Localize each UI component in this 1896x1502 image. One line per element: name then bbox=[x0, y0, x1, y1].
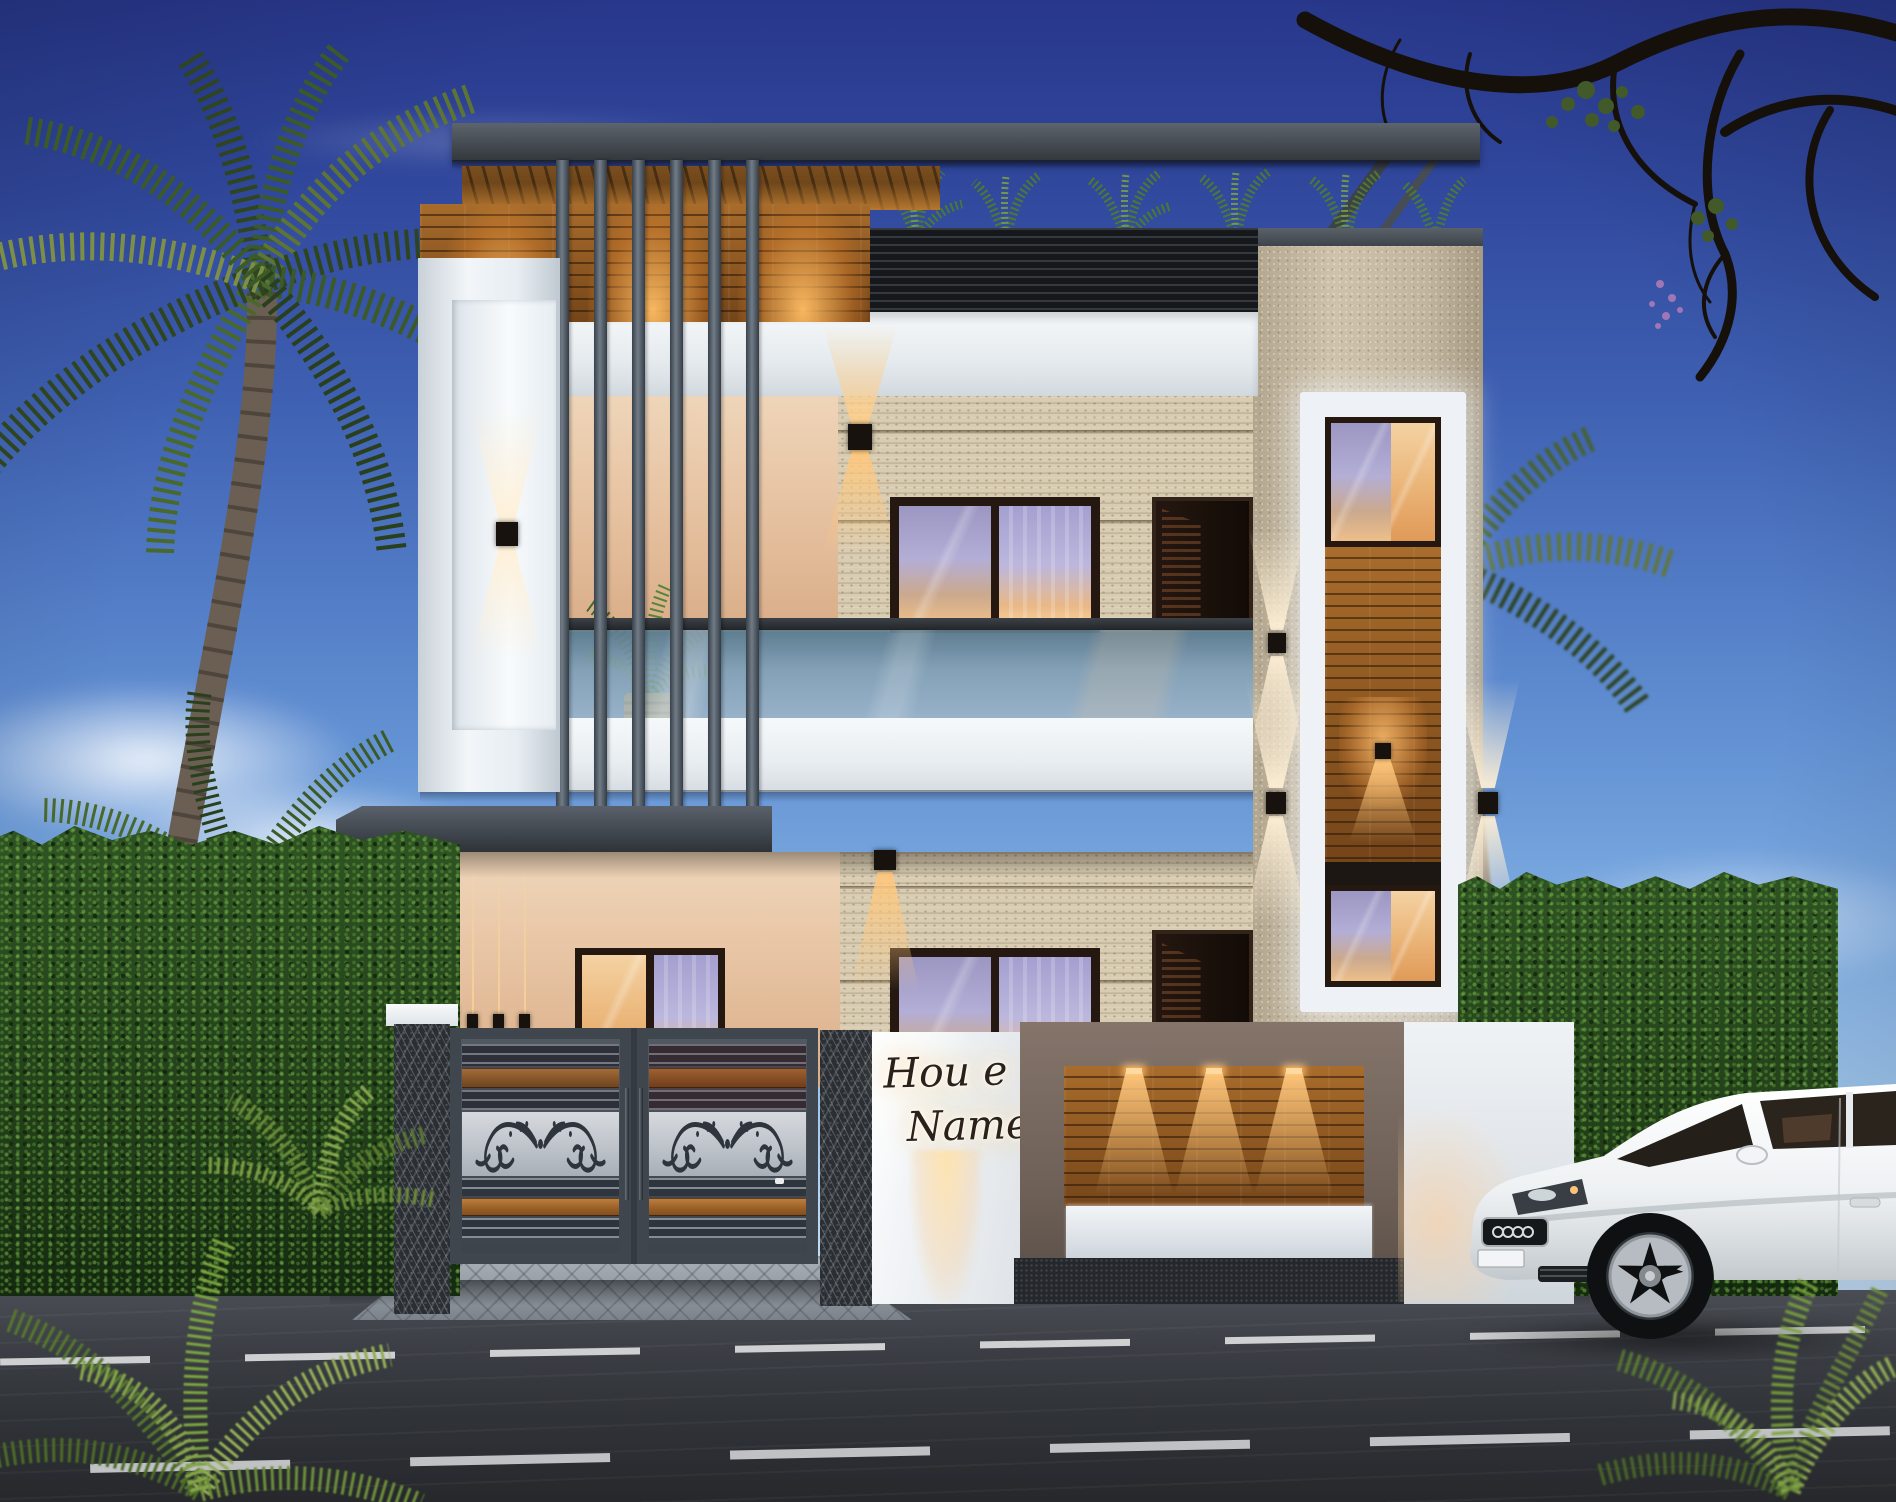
louver-band bbox=[868, 228, 1258, 312]
white-pillar bbox=[418, 258, 560, 792]
wall-sconce-icon bbox=[1266, 792, 1286, 814]
upper-window bbox=[890, 497, 1100, 633]
facade-slat bbox=[632, 160, 645, 850]
scrollwork-ornament bbox=[649, 1112, 806, 1176]
wall-sconce-icon bbox=[874, 850, 896, 870]
facade-slat bbox=[670, 160, 683, 850]
stone-groove bbox=[840, 886, 1253, 889]
uplight-glow bbox=[588, 204, 718, 322]
window-curtain bbox=[995, 506, 1091, 624]
roof-slab bbox=[452, 123, 1480, 161]
wall-sconce-icon bbox=[496, 522, 518, 546]
branch-blossoms bbox=[1649, 280, 1683, 329]
car-b-pillar bbox=[1846, 1092, 1853, 1148]
marble-base bbox=[1014, 1258, 1416, 1304]
house-name-line1: Hou e bbox=[871, 1046, 1020, 1098]
window-curtain bbox=[1331, 891, 1391, 981]
uplight-fixture-icon bbox=[467, 1014, 478, 1029]
uplight-fixture-icon bbox=[493, 1014, 504, 1029]
car-mirror bbox=[1737, 1146, 1767, 1164]
compound-wood-panel bbox=[1064, 1066, 1364, 1208]
tower-feature-inner bbox=[1325, 417, 1441, 987]
window-pane bbox=[1391, 891, 1435, 981]
downlight-icon bbox=[1286, 1068, 1302, 1074]
architectural-render-scene: Hou e Name bbox=[0, 0, 1896, 1502]
window-pane bbox=[899, 506, 995, 624]
feature-window-bottom bbox=[1325, 885, 1441, 987]
upper-balcony-door bbox=[1152, 497, 1253, 631]
door-louver bbox=[1162, 509, 1201, 620]
gate-handle bbox=[639, 1088, 643, 1200]
facade-slat bbox=[708, 160, 721, 850]
downlight-icon bbox=[1126, 1068, 1142, 1074]
wall-sconce-icon bbox=[1478, 792, 1498, 814]
wall-sconce-icon bbox=[1268, 633, 1286, 653]
car-interior bbox=[1782, 1114, 1832, 1143]
marble-pillar-right bbox=[820, 1030, 872, 1306]
car-license-plate bbox=[1478, 1250, 1524, 1267]
downlight-cone bbox=[1092, 1072, 1176, 1206]
foreground-plant-left bbox=[0, 1060, 620, 1502]
downlight-cone bbox=[1252, 1072, 1336, 1206]
taupe-compound-wall bbox=[1020, 1022, 1408, 1265]
feature-wood-panel bbox=[1325, 547, 1441, 862]
name-wall: Hou e Name bbox=[872, 1032, 1020, 1304]
stone-groove bbox=[838, 430, 1253, 433]
foreground-plant-right bbox=[1560, 1190, 1896, 1502]
wall-sconce-icon bbox=[848, 424, 872, 450]
pillar-cap bbox=[386, 1004, 458, 1026]
under-balcony-shadow bbox=[425, 852, 1253, 878]
facade-slat bbox=[746, 160, 759, 850]
tower-feature-frame bbox=[1300, 392, 1466, 1012]
gate-leaf-right bbox=[637, 1028, 818, 1264]
feature-light-icon bbox=[1375, 743, 1391, 759]
gate-ornament-band bbox=[649, 1112, 806, 1176]
white-planter bbox=[1066, 1206, 1372, 1260]
downlight-icon bbox=[1206, 1068, 1222, 1074]
gate-tint bbox=[649, 1044, 806, 1110]
gate-handle bbox=[625, 1088, 629, 1200]
gate-slats bbox=[649, 1218, 806, 1238]
house-name-line2: Name bbox=[872, 1100, 1021, 1152]
facade-slat bbox=[594, 160, 607, 850]
sign-light-wash bbox=[910, 1150, 982, 1302]
feature-window-top bbox=[1325, 417, 1441, 547]
gate-latch bbox=[775, 1178, 784, 1184]
window-mullion bbox=[991, 506, 999, 624]
tower-parapet bbox=[1253, 228, 1483, 246]
downlight-cone bbox=[1172, 1072, 1256, 1206]
house-name-sign: Hou e Name bbox=[871, 1046, 1022, 1152]
window-curtain bbox=[1331, 423, 1391, 541]
gate-wood-band bbox=[649, 1198, 806, 1216]
window-pane bbox=[1391, 423, 1435, 541]
uplight-fixture-icon bbox=[519, 1014, 530, 1029]
car-grille bbox=[1482, 1218, 1548, 1246]
